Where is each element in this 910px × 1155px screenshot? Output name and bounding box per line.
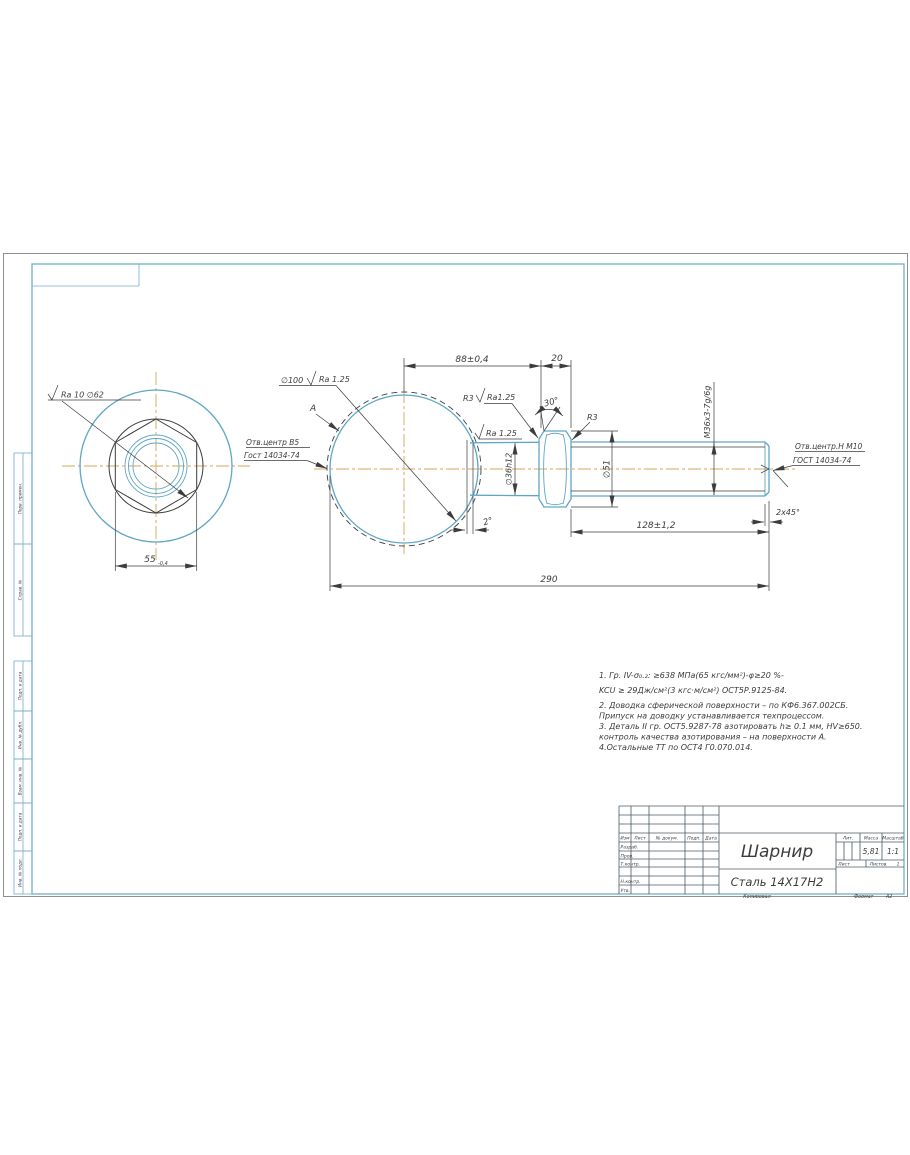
center-hole-right-2: ГОСТ 14034-74 — [793, 456, 852, 465]
mass-value: 5,81 — [863, 847, 880, 856]
drawing-sheet: Перв. примен. Справ. № Подп. и дата Инв.… — [3, 253, 908, 897]
dia-36: ∅36h12 — [505, 453, 514, 485]
center-hole-right-1: Отв.центр.Н М10 — [795, 442, 862, 451]
dim-128-group: 128±1,2 — [571, 501, 769, 591]
sheets-value: 1 — [897, 862, 900, 868]
fillet-ra: Ra1.25 — [487, 393, 515, 402]
margin-label: Взам. инв. № — [18, 766, 23, 795]
dim-128: 128±1,2 — [636, 521, 675, 531]
left-surface-label: Ra 10 ∅62 — [61, 391, 104, 400]
chamfer-dim: 2х45° — [751, 504, 800, 526]
dim-20: 20 — [551, 354, 563, 364]
format-label: Формат — [854, 894, 874, 898]
surface-a-callout: A — [309, 404, 339, 431]
thread-label: М36х3-7g/6g — [703, 386, 712, 439]
angle-2-callout: 2° — [451, 516, 494, 530]
dia-36-dim: ∅36h12 — [505, 443, 516, 495]
margin-label: Инв. № дубл. — [18, 721, 23, 750]
note-line: 3. Деталь II гр. ОСТ5.9287-78 азотироват… — [599, 722, 862, 731]
tb-row-utv: Утв. — [621, 888, 630, 894]
angle-30-callout: 30° — [535, 396, 563, 431]
tb-col-data: Дата — [704, 836, 717, 842]
center-hole-left-2: Гост 14034-74 — [244, 451, 300, 460]
dia-51: ∅51 — [603, 460, 613, 478]
tb-row-tkontr: Т.контр. — [621, 862, 641, 868]
technical-notes: 1. Гр. IV-σ₀.₂: ≥638 МПа(65 кгс/мм²)-φ≥2… — [599, 671, 862, 752]
drawing-svg: Перв. примен. Справ. № Подп. и дата Инв.… — [4, 254, 909, 898]
note-line: 4.Остальные ТТ по ОСТ4 Г0.070.014. — [599, 743, 753, 752]
hex-collar — [539, 431, 571, 507]
format-value: А2 — [885, 894, 892, 898]
margin-label: Подп. и дата — [18, 671, 23, 700]
sheets-label: Листов — [869, 862, 887, 868]
margin-label: Справ. № — [18, 579, 23, 600]
note-line: 1. Гр. IV-σ₀.₂: ≥638 МПа(65 кгс/мм²)-φ≥2… — [599, 671, 784, 680]
note-line: Припуск на доводку устанавливается техпр… — [599, 712, 824, 721]
thread-callout: М36х3-7g/6g — [703, 382, 714, 495]
scale-value: 1:1 — [887, 847, 899, 856]
chamfer-2x45: 2х45° — [776, 508, 800, 517]
note-line: KCU ≥ 29Дж/см²(3 кгс·м/см²) ОСТ5Р.9125-8… — [599, 686, 787, 695]
tb-col-list: Лист — [633, 836, 646, 842]
margin-label: Инв. № подл. — [18, 858, 23, 887]
tb-col-dokum: № докум. — [655, 836, 678, 842]
tb-col-izm: Изм — [620, 836, 630, 842]
dim-290-group: 290 — [330, 476, 769, 591]
center-hole-left-1: Отв.центр В5 — [246, 438, 299, 447]
sphere-ra: Ra 1.25 — [319, 375, 350, 384]
copied-label: Копировал — [743, 894, 770, 898]
dim-88: 88±0,4 — [455, 355, 489, 365]
tb-col-podp: Подп. — [687, 836, 701, 842]
title-block: Изм Лист № докум. Подп. Дата Разраб. Про… — [619, 806, 904, 898]
left-margin-boxes: Перв. примен. Справ. № Подп. и дата Инв.… — [14, 453, 32, 894]
dim-55: 55 — [144, 555, 156, 565]
material: Сталь 14Х17Н2 — [731, 875, 824, 889]
margin-label: Подп. и дата — [18, 812, 23, 841]
tb-row-razrab: Разраб. — [621, 845, 639, 851]
note-line: контроль качества азотирования – на пове… — [599, 733, 827, 742]
neck-ra-callout: Ra 1.25 — [475, 424, 522, 439]
dimensions: 88±0,4 20 ∅100 Ra 1.25 A Отв.центр В5 Го… — [244, 354, 865, 591]
page: { "frame": { "left_labels": ["Перв. прим… — [0, 0, 910, 1155]
angle-2: 2° — [482, 516, 494, 528]
surface-a: A — [309, 404, 316, 414]
tb-row-prov: Пров. — [621, 854, 634, 860]
center-hole-right-callout: Отв.центр.Н М10 ГОСТ 14034-74 — [773, 442, 865, 487]
dia-100: ∅100 — [281, 376, 303, 385]
mass-label: Масса — [864, 836, 879, 842]
sphere-dia-callout: ∅100 Ra 1.25 — [279, 371, 456, 521]
angle-30: 30° — [543, 396, 560, 410]
scale-label: Масштаб — [882, 836, 904, 842]
part-name: Шарнир — [741, 842, 814, 862]
sheet-label: Лист — [837, 862, 850, 868]
center-hole-left-callout: Отв.центр В5 Гост 14034-74 — [244, 438, 327, 469]
fillet-r3: R3 — [463, 394, 474, 403]
neck-ra: Ra 1.25 — [486, 429, 517, 438]
fillet-r3-right: R3 — [587, 413, 598, 422]
note-line: 2. Доводка сферической поверхности – по … — [599, 701, 848, 710]
lit-label: Лит. — [842, 836, 853, 842]
left-view: Ra 10 ∅62 55 -0,4 — [48, 372, 250, 571]
dim-55-tol: -0,4 — [158, 561, 168, 567]
tb-row-nkontr: Н.контр. — [621, 879, 641, 885]
margin-label: Перв. примен. — [18, 483, 23, 514]
dim-290: 290 — [540, 575, 557, 585]
fillet-r3-right-callout: R3 — [572, 413, 598, 440]
